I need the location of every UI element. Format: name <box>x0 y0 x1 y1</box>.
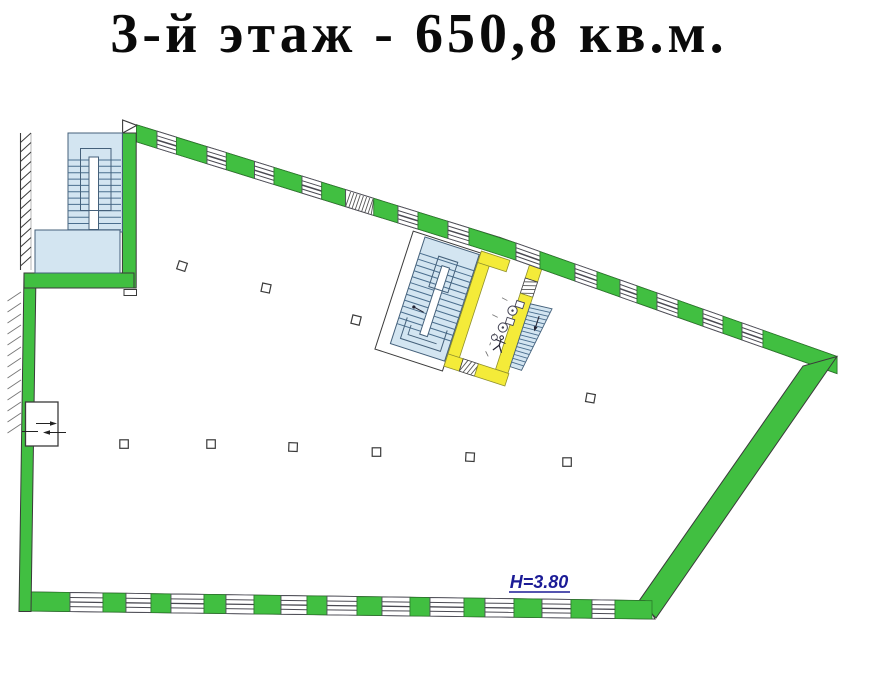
svg-text:H=3.80: H=3.80 <box>510 572 569 592</box>
